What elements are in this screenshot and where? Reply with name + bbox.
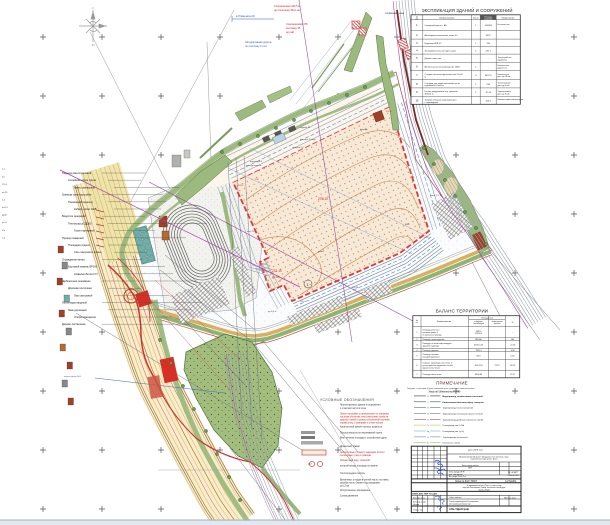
svg-text:дата 2009 изм.: дата 2009 изм. [468,450,483,452]
svg-text:Линии застройки установленные: Линии застройки установленные по граница… [340,413,389,416]
svg-text:подземная 6.9х24 м: подземная 6.9х24 м [425,85,445,87]
svg-text:здание автостоянок: здание автостоянок [423,367,441,369]
svg-text:Самоземные барк углов. Тронк: Самоземные барк углов. Тронк [470,459,497,461]
svg-text:12.97: 12.97 [510,374,516,376]
svg-text:Гн: Гн [427,425,429,427]
svg-text:Сохраняемая 446.5 м: Сохраняемая 446.5 м [274,4,300,8]
svg-text:Граница зоны застройки: Граница зоны застройки [62,193,92,197]
svg-text:203х21 м: 203х21 м [425,94,434,96]
svg-text:Карельца АТВ 3С: Карельца АТВ 3С [425,42,442,45]
svg-text:дист. до 3 м/б: дист. до 3 м/б [498,85,510,87]
svg-text:Текущая с текстами 4 день: Текущая с текстами 4 день поверхностных,… [407,388,476,390]
svg-text:газон: газон [318,251,324,253]
svg-text:до 12 км: до 12 км [340,486,349,488]
svg-text:8904.69: 8904.69 [475,374,483,376]
svg-text:Автогаражи-технические навес 4: Автогаражи-технические навес 4б [425,34,459,37]
svg-text:Стадион истового футболянства: Стадион истового футболянства 5.5х75 [425,73,464,76]
svg-text:Знак дорожный: Знак дорожный [68,308,87,312]
svg-text:%: % [512,322,514,324]
svg-text:с отметкой чистого пола: с отметкой чистого пола [340,407,367,410]
svg-text:сохранимая зона: сохранимая зона [385,12,405,15]
svg-text:подъезд 4.5: подъезд 4.5 [250,161,263,163]
svg-text:Теплотрасса 2Д300: Теплотрасса 2Д300 [68,221,92,225]
svg-text:Газопровод низ. (р.б): Газопровод низ. (р.б) [443,431,465,433]
svg-text:Трубопровод двойных кабельных: Трубопровод двойных кабельных линий [443,418,485,421]
svg-text:Древесный травер: Древесный травер [340,445,361,448]
svg-text:45312+34: 45312+34 [474,344,484,346]
svg-text:Водосток дождевой: Водосток дождевой [62,214,86,218]
svg-text:п/п: п/п [416,18,419,20]
svg-text:ул. 8: ул. 8 [2,222,8,224]
svg-text:Временных отходов в летний: Временных отходов в летний часть это нав… [340,479,390,482]
svg-text:Щебеночное основание: Щебеночное основание [62,279,91,283]
svg-text:удаленная: удаленная [498,68,507,70]
svg-text:3521: 3521 [486,35,492,37]
svg-text:Люк смотровой: Люк смотровой [74,293,93,297]
svg-text:Асфальтовые стоянки с навесами: Асфальтовые стоянки с навесами Атипич [340,451,385,454]
svg-text:Ограждение метал.: Ограждение метал. [62,257,86,261]
svg-text:Теплопровод табельный: Теплопровод табельный [443,436,469,439]
svg-text:Газон партерный: Газон партерный [74,229,95,233]
svg-text:Канализация бытовая офиц. выпу: Канализация бытовая офиц. выпуски [443,401,485,404]
svg-text:Площадь озеленения: Площадь озеленения [423,374,442,376]
svg-text:Бортовой камень БР100: Бортовой камень БР100 [68,265,98,269]
svg-text:Кабель связи 10кВ: Кабель связи 10кВ [74,207,97,211]
svg-text:Масштаб (Мнженерных сетей: Масштаб (Мнженерных сетей [429,390,461,393]
svg-text:клумба 25: клумба 25 [300,127,311,129]
svg-text:БАЛАНС ТЕРРИТОРИИ: БАЛАНС ТЕРРИТОРИИ [436,309,488,314]
svg-text:застройки: застройки [484,17,492,20]
svg-text:дист. до 9 м/б: дист. до 9 м/б [498,93,510,95]
svg-text:до 4.5 м: до 4.5 м [268,311,277,313]
svg-text:±0.00: ±0.00 [272,275,280,279]
svg-text:который между площади по ж: который между площади по жертве [340,465,379,468]
svg-text:301.2: 301.2 [386,111,392,113]
svg-text:Генплощадей: Генплощадей [473,322,484,325]
svg-text:Атт инфа Ключ-2 м: Атт инфа Ключ-2 м [449,475,466,478]
svg-text:по генплану 2 пол.: по генплану 2 пол. [245,44,268,48]
svg-text:обстановка реклама тир: обстановка реклама тир [449,503,470,505]
svg-text:Капитальный ремонт полосы асфа: Капитальный ремонт полосы асфальта [340,426,383,429]
svg-text:фонарь: фонарь [360,128,369,131]
svg-text:подземная: подземная [498,59,507,61]
svg-text:с переводами: с переводами [425,102,439,104]
svg-text:Дорожка плиточная: Дорожка плиточная [68,286,92,290]
svg-text:Полоса веществ по жертвований: Полоса веществ по жертвований тропа [340,432,383,435]
svg-text:откос 1:1.5: откос 1:1.5 [430,195,442,197]
svg-text:271.10: 271.10 [272,269,282,273]
svg-text:СУ-4: СУ-4 [2,184,8,186]
svg-text:Абонентный ряд с отметкой: Абонентный ряд с отметкой [340,459,371,462]
svg-text:дист. до 18 мм: дист. до 18 мм [498,76,511,78]
svg-text:Колонка тина: Колонка тина [413,497,426,499]
svg-text:Навес имперский: Навес имперский [74,185,96,189]
svg-text:ПРИМЕЧАНИЕ: ПРИМЕЧАНИЕ [436,381,468,386]
svg-text:104.5: 104.5 [485,100,491,102]
svg-text:Услуга ном: Услуга ном [413,510,423,512]
svg-text:Схема движения: Схема движения [340,496,359,498]
svg-text:1119.234: 1119.234 [474,365,483,367]
svg-text:276.4: 276.4 [300,301,306,303]
svg-text:Подъезд магистральной: Подъезд магистральной [62,171,92,175]
svg-text:Лопасти ЗАО ТХМТ: Лопасти ЗАО ТХМТ [455,480,477,483]
svg-text:Автомат участков размещение СМ: Автомат участков размещение СМЭ [425,65,461,68]
svg-text:Сохраняемая 478: Сохраняемая 478 [286,22,308,26]
svg-text:Джипы навесные: Джипы навесные [425,58,442,60]
svg-text:Теплопередача полоса: Теплопередача полоса [340,473,365,475]
svg-text:Экспериментальная подстанция: Экспериментальная подстанция [425,50,456,52]
svg-text:Площадь дорожек: Площадь дорожек [423,350,439,352]
svg-text:Складской докгон с АБ: Складской докгон с АБ [425,24,448,27]
svg-text:до поселения Мос км: до поселения Мос км [274,8,300,12]
svg-text:51659.2: 51659.2 [475,333,483,335]
svg-text:Проезд пожарный: Проезд пожарный [62,236,84,240]
svg-text:АЛЬ ТДмОграф: АЛЬ ТДмОграф [449,507,470,511]
svg-text:Наименование: Наименование [439,17,455,19]
svg-text:частным объектам этим ответст: частным объектам этим ответствии хозяйст… [340,416,389,419]
svg-text:Проектируемые здания и сооруже: Проектируемые здания и сооружения [340,405,381,407]
svg-text:Площадка отдыха: Площадка отдыха [68,243,90,247]
svg-text:Трубопровод теплоснабжения: Трубопровод теплоснабжения [443,408,475,410]
svg-text:границ Парк]: границ Парк] [478,489,490,491]
svg-text:Аллейная шоссе тропа: Аллейная шоссе тропа [68,178,96,182]
svg-text:294.6: 294.6 [238,185,244,187]
svg-text:пешеходных улиц в границах: пешеходных улиц в границах [340,455,372,457]
svg-text:14.5%: 14.5% [510,365,516,367]
svg-text:Ю: Ю [92,43,95,47]
svg-text:проезд подсып.: проезд подсып. [246,165,262,167]
svg-text:0-27м/281: 0-27м/281 [505,480,517,483]
svg-text:канал вдоль №3: канал вдоль №3 [64,375,81,378]
svg-text:Смел намного: Смел намного [449,497,461,499]
svg-text:Искусственное заграждение: Искусственное заграждение [340,490,371,492]
svg-text:Газопровод низ.% Nb: Газопровод низ.% Nb [443,425,465,427]
svg-text:Верт течения площади с устройс: Верт течения площади с устройством дорог [340,437,387,440]
svg-text:Кт: Кт [427,443,429,445]
svg-text:Низ ант мп/а: Низ ант мп/а [504,497,517,499]
svg-text:тротуар 2.2: тротуар 2.2 [292,147,304,149]
svg-text:272.9: 272.9 [494,365,500,367]
svg-text:231.7: 231.7 [485,50,491,52]
svg-text:+2.63: +2.63 [510,344,516,346]
svg-text:Наименование: Наименование [437,321,452,323]
svg-text:Без навесных: Без навесных [498,24,510,26]
svg-text:Водопровод хозяйственно-питьев: Водопровод хозяйственно-питьевой [443,395,484,398]
svg-text:Асфальтобетон h=7: Асфальтобетон h=7 [74,272,98,276]
svg-text:отв. 2.0: отв. 2.0 [247,231,255,233]
svg-text:красных линий и границ собстве: красных линий и границ собственной прочи… [340,419,390,422]
svg-text:Лоток водоотводный: Лоток водоотводный [62,301,87,305]
svg-text:Дерево лиственное: Дерево лиственное [62,322,86,326]
svg-text:181000.: 181000. [475,339,483,341]
svg-text:справа улиц с номерами и к ним: справа улиц с номерами и к ним чертам [340,423,383,425]
svg-text:6437.5: 6437.5 [485,75,492,77]
svg-text:100059: 100059 [485,25,493,27]
svg-text:ЭКСПЛИКАЦИЯ ЗДАНИЙ И СООРУЖЕНИ: ЭКСПЛИКАЦИЯ ЗДАНИЙ И СООРУЖЕНИЙ [421,8,512,13]
svg-text:посадкой деревьев: посадкой деревьев [423,356,440,359]
svg-text:г Олень БМ: г Олень БМ [508,475,519,477]
svg-text:акрылок: акрылок [494,323,501,325]
svg-text:Трубопровод тепломагистрали се: Трубопровод тепломагистрали сетевой [443,412,484,415]
svg-text:Комплектация-ный материал: Комплектация-ный материал [498,98,524,101]
svg-text:Автодорожная дорога: Автодорожная дорога [245,40,272,44]
svg-text:СМЕН АМС ТВР ЧСС(АТ): СМЕН АМС ТВР ЧСС(АТ) [412,493,438,496]
svg-text:Сеть наружного освещ.: Сеть наружного освещ. [74,250,102,254]
svg-text:Кабельная линия: Кабельная линия [443,443,461,445]
svg-text:70.16: 70.16 [485,92,491,94]
svg-text:Ц2-28: Ц2-28 [352,287,359,289]
svg-text:Истоки: Истоки [413,504,419,506]
svg-text:Кол-во: Кол-во [473,17,478,19]
svg-text:п.п: п.п [416,322,418,324]
svg-text:Примечание: Примечание [502,17,515,19]
svg-text:посадка 2 ряда: посадка 2 ряда [300,139,316,141]
svg-text:скотовед 35: скотовед 35 [286,26,301,30]
svg-text:до рай: до рай [286,30,295,34]
svg-text:Тк: Тк [427,437,429,439]
svg-text:276.10: 276.10 [318,197,328,201]
svg-text:Площадь м2: Площадь м2 [481,318,494,320]
svg-text:в Раменки-43: в Раменки-43 [236,14,255,18]
svg-text:УСЛОВНЫЕ ОБОЗНАЧЕНИЯ: УСЛОВНЫЕ ОБОЗНАЧЕНИЯ [320,398,374,402]
svg-text:зданий и подъезда: зданий и подъезда [423,345,440,348]
svg-text:Опора освещения: Опора освещения [74,315,96,319]
svg-text:по 25: по 25 [2,192,8,194]
svg-text:генеральных проезда: генеральных проезда [423,334,443,336]
svg-text:КНС: КНС [405,224,410,226]
svg-text:декабрь мыть бланкет под п: декабрь мыть бланкет под праздники [340,483,381,485]
svg-text:Подземный переход: Подземный переход [68,200,93,204]
svg-text:Площадь проектируемая: Площадь проектируемая [423,339,445,341]
svg-text:7982.2: 7982.2 [475,350,482,352]
svg-text:Д-30: Д-30 [2,215,7,217]
svg-text:26. ЧСМРТ: 26. ЧСМРТ [508,472,519,474]
svg-text:h=2.5: h=2.5 [2,207,8,209]
